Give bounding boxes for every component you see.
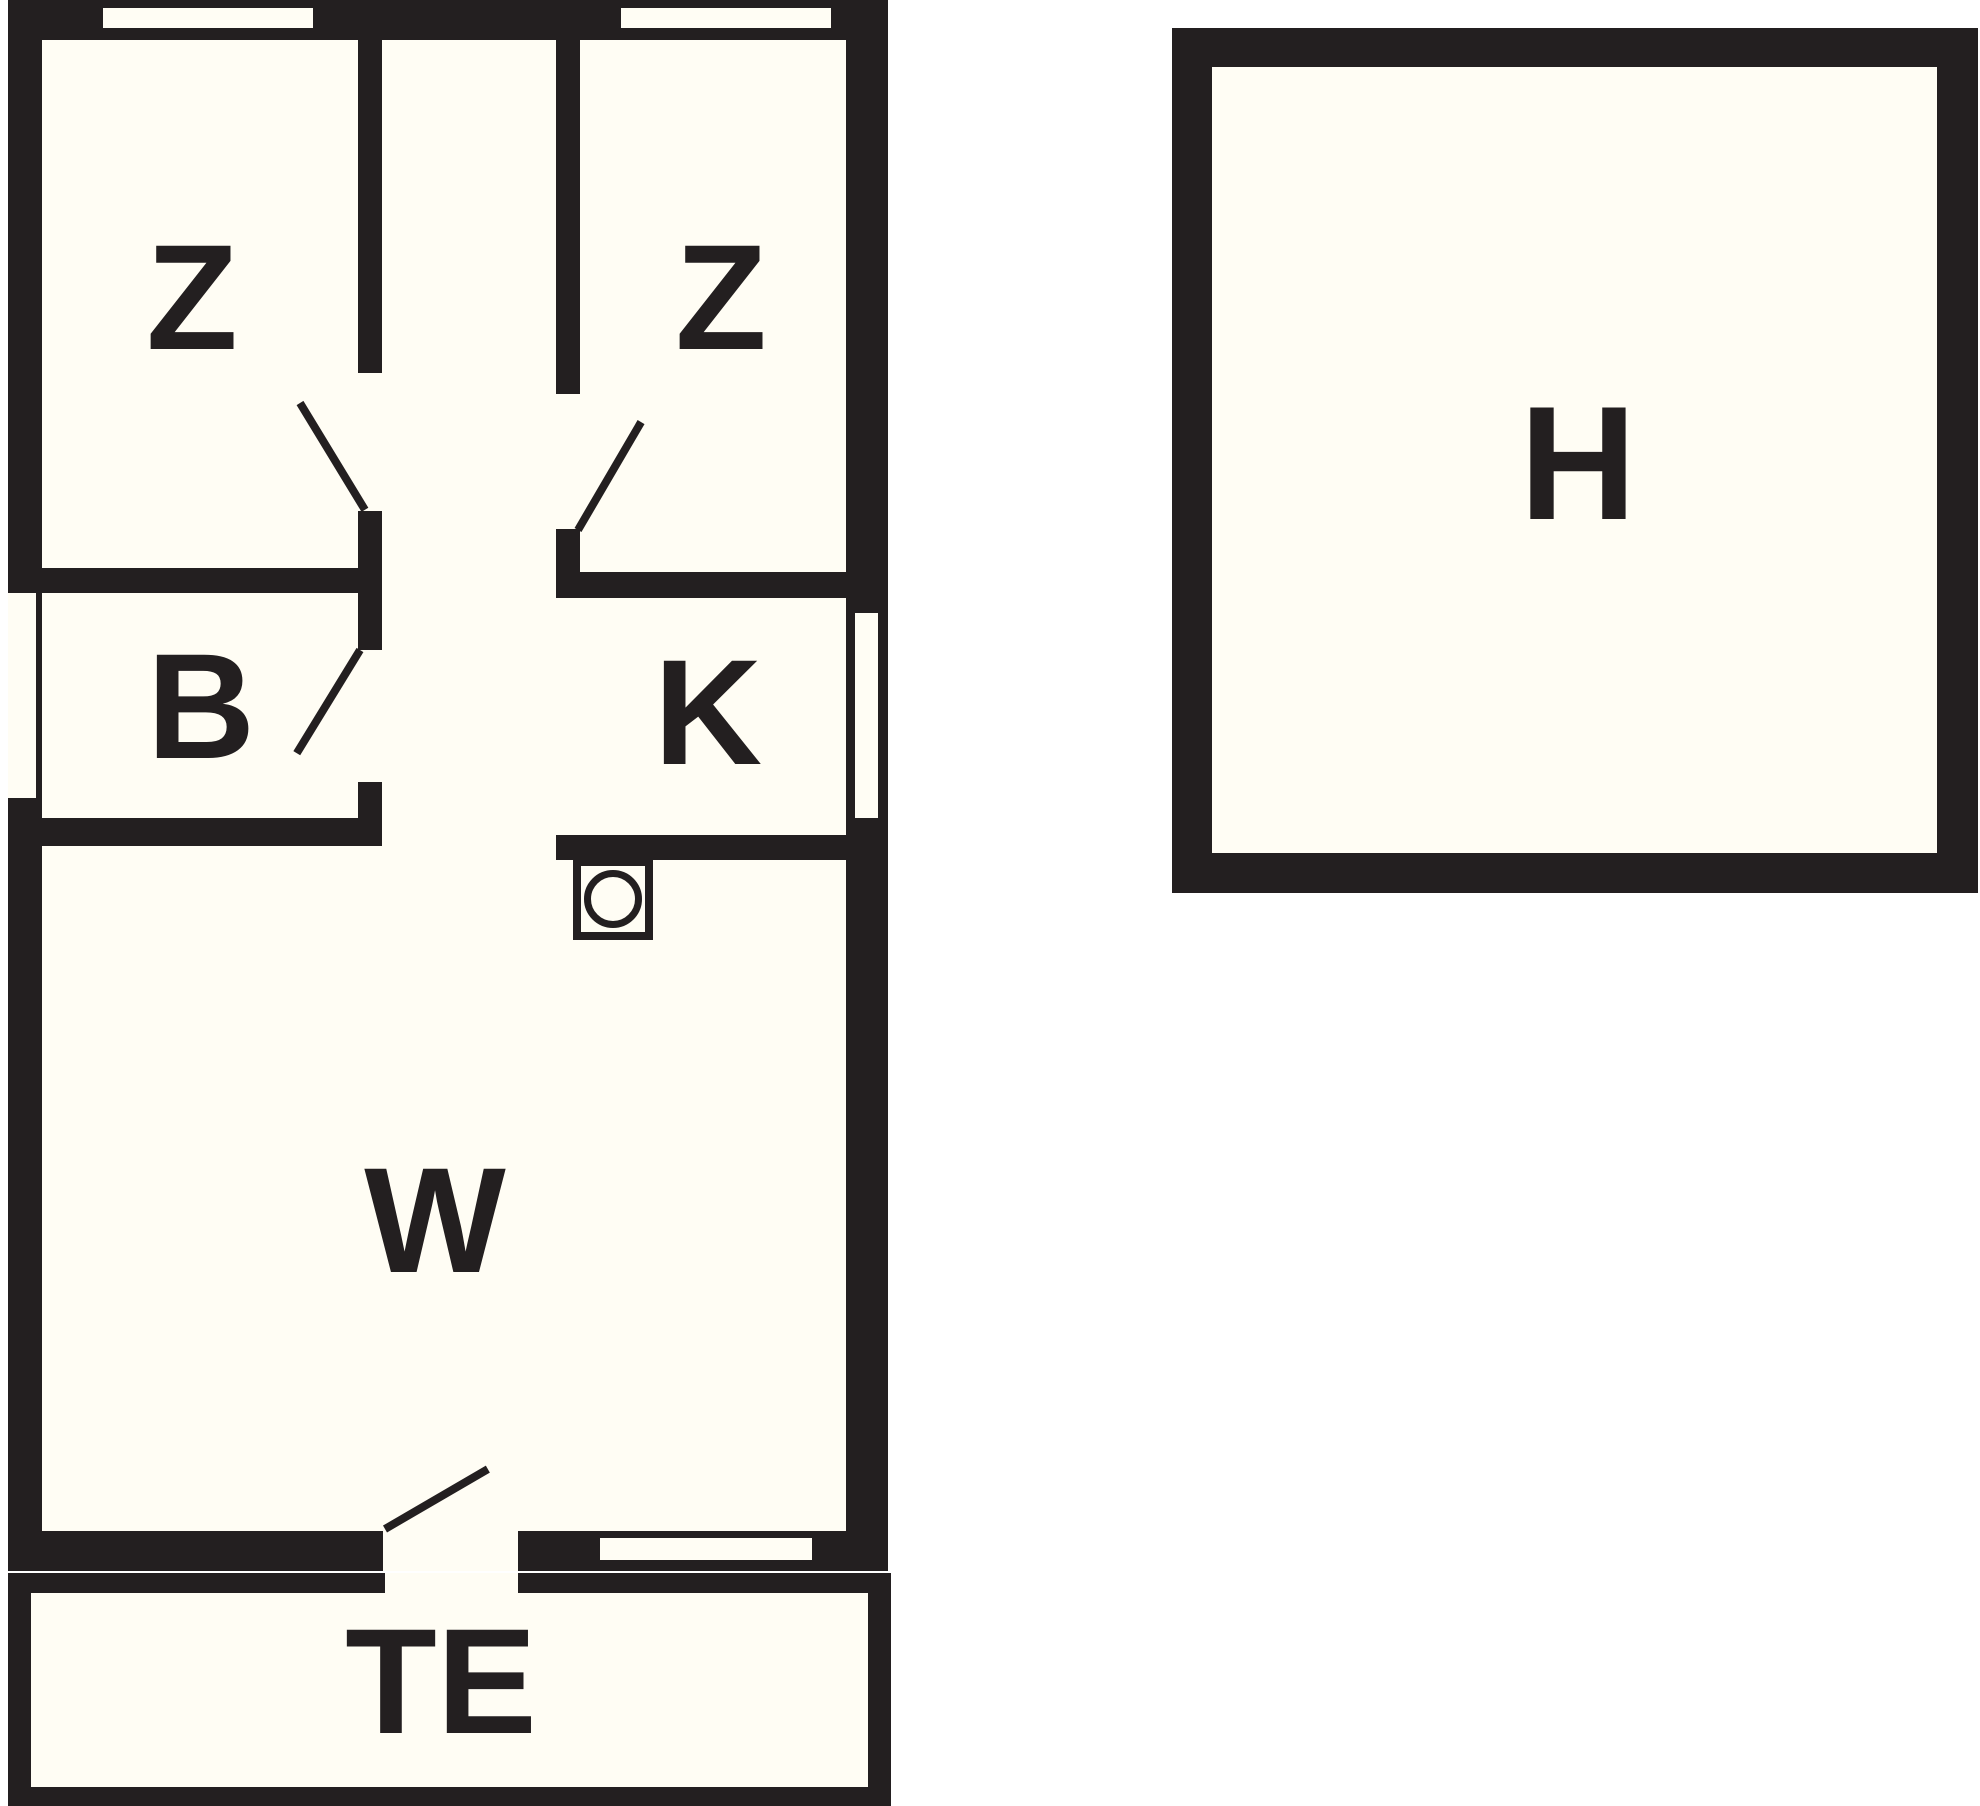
room-label-bedroom-right: Z — [675, 222, 767, 372]
terrace-right-border — [868, 1573, 891, 1806]
room-label-bathroom: B — [147, 631, 255, 781]
bedroom-left-bathroom-wall — [8, 568, 382, 593]
hall-left-wall-upper — [358, 40, 382, 373]
window-left-bathroom — [8, 593, 36, 798]
outbuilding-top-wall — [1172, 28, 1978, 67]
outbuilding-bottom-wall — [1172, 853, 1978, 893]
washing-machine-icon — [573, 858, 653, 940]
outbuilding-right-wall — [1937, 28, 1978, 893]
room-label-living-room: W — [364, 1145, 506, 1295]
terrace-left-border — [8, 1573, 31, 1806]
floor-plan: Z Z B K W TE H — [0, 0, 1980, 1806]
bedroom-right-kitchen-wall — [556, 572, 888, 598]
terrace-top-border-left — [8, 1573, 385, 1593]
hall-right-wall-upper — [556, 40, 580, 394]
washing-machine-drum-icon — [584, 870, 642, 928]
window-right-kitchen — [855, 613, 878, 818]
kitchen-bottom-wall — [556, 835, 888, 860]
room-label-bedroom-left: Z — [146, 222, 238, 372]
outbuilding-left-wall — [1172, 28, 1212, 893]
main-bottom-wall-left-segment — [8, 1531, 383, 1571]
room-label-terrace: TE — [345, 1606, 537, 1756]
room-label-kitchen: K — [654, 637, 762, 787]
room-label-outbuilding: H — [1520, 383, 1637, 545]
window-top-left — [103, 8, 313, 28]
bathroom-bottom-wall — [8, 818, 382, 846]
terrace-bottom-border — [8, 1787, 891, 1806]
terrace-top-border-right — [518, 1573, 891, 1593]
window-top-right — [621, 8, 831, 28]
window-bottom-living — [600, 1538, 812, 1560]
